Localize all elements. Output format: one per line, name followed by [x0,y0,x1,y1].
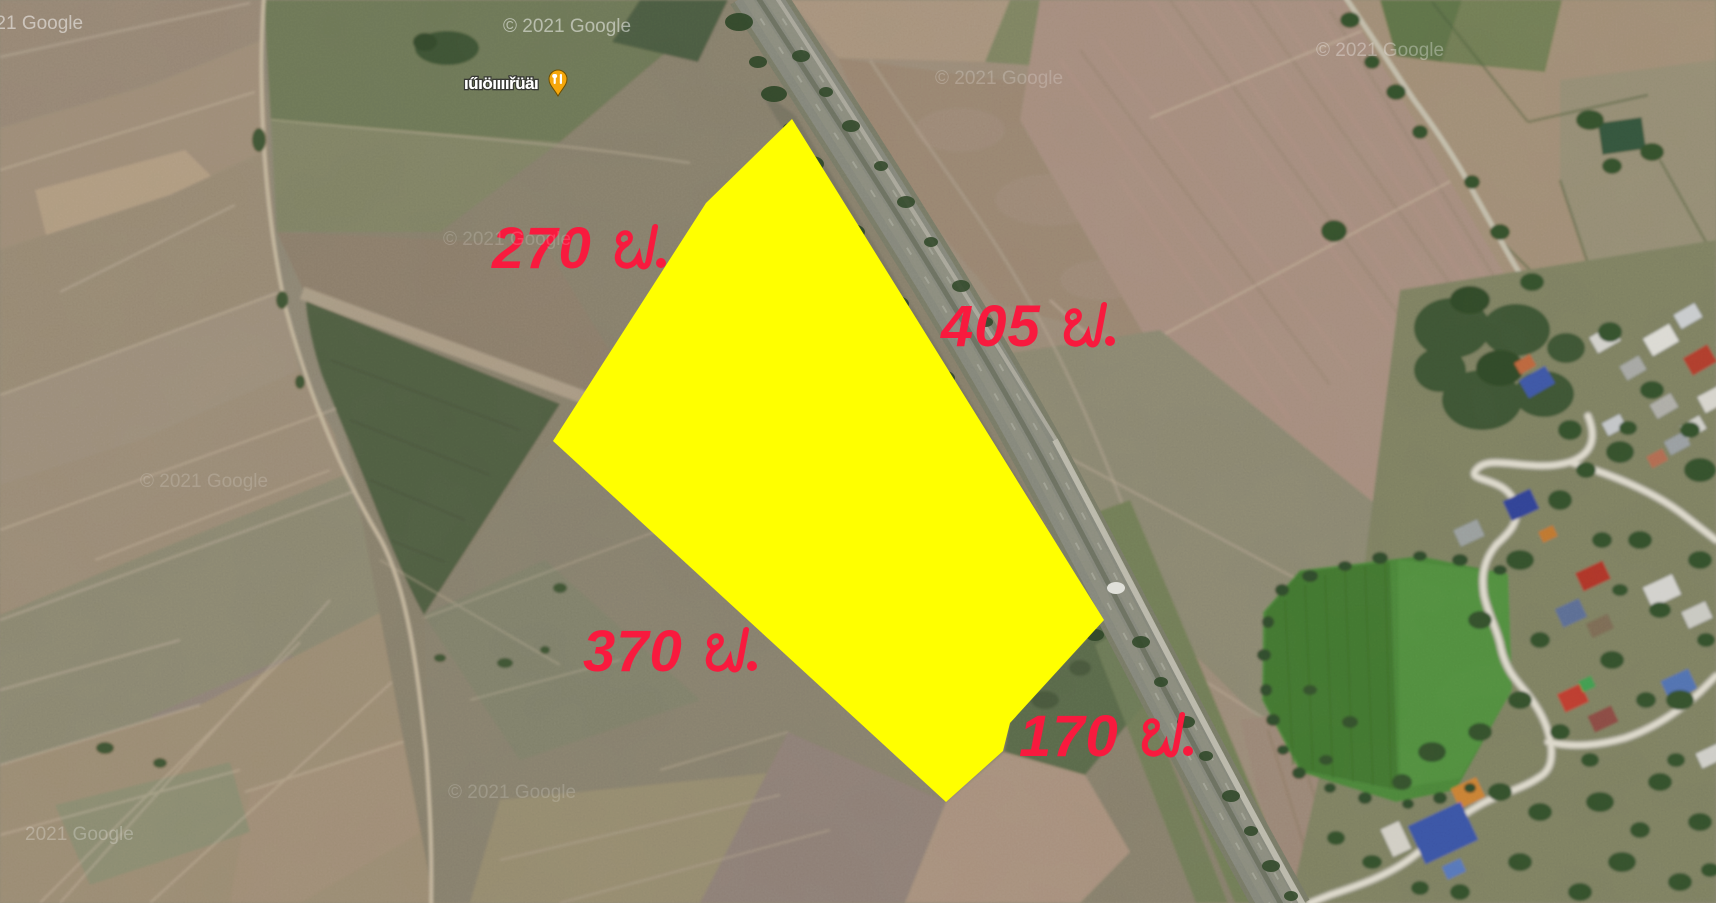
svg-text:© 2021 Google: © 2021 Google [935,68,1063,89]
svg-text:© 2021 Google: © 2021 Google [0,13,83,34]
svg-text:© 2021 Google: © 2021 Google [140,471,268,492]
svg-text:© 2021 Google: © 2021 Google [448,782,576,803]
svg-text:2021 Google: 2021 Google [25,824,134,845]
svg-text:ıűıöııııřüäı: ıűıöııııřüäı [464,74,538,93]
svg-text:405: 405 [940,294,1041,359]
svg-text:© 2021 Google: © 2021 Google [443,229,571,250]
svg-text:170: 170 [1019,704,1119,769]
svg-text:© 2021 Google: © 2021 Google [503,16,631,37]
svg-text:© 2021 Google: © 2021 Google [1316,40,1444,61]
svg-text:370: 370 [583,619,683,684]
